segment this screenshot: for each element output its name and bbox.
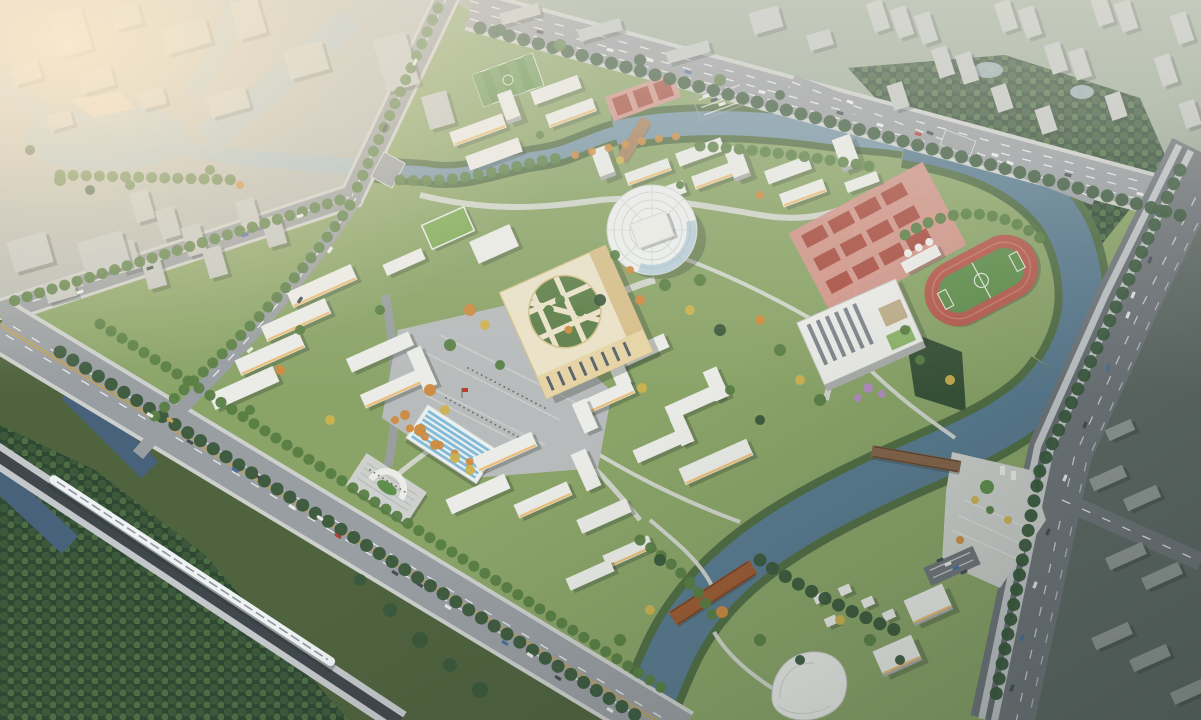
campus-aerial-rendering [0, 0, 1201, 720]
atmosphere [0, 0, 1201, 720]
dusk-vignette [0, 0, 1201, 720]
scene-svg [0, 0, 1201, 720]
